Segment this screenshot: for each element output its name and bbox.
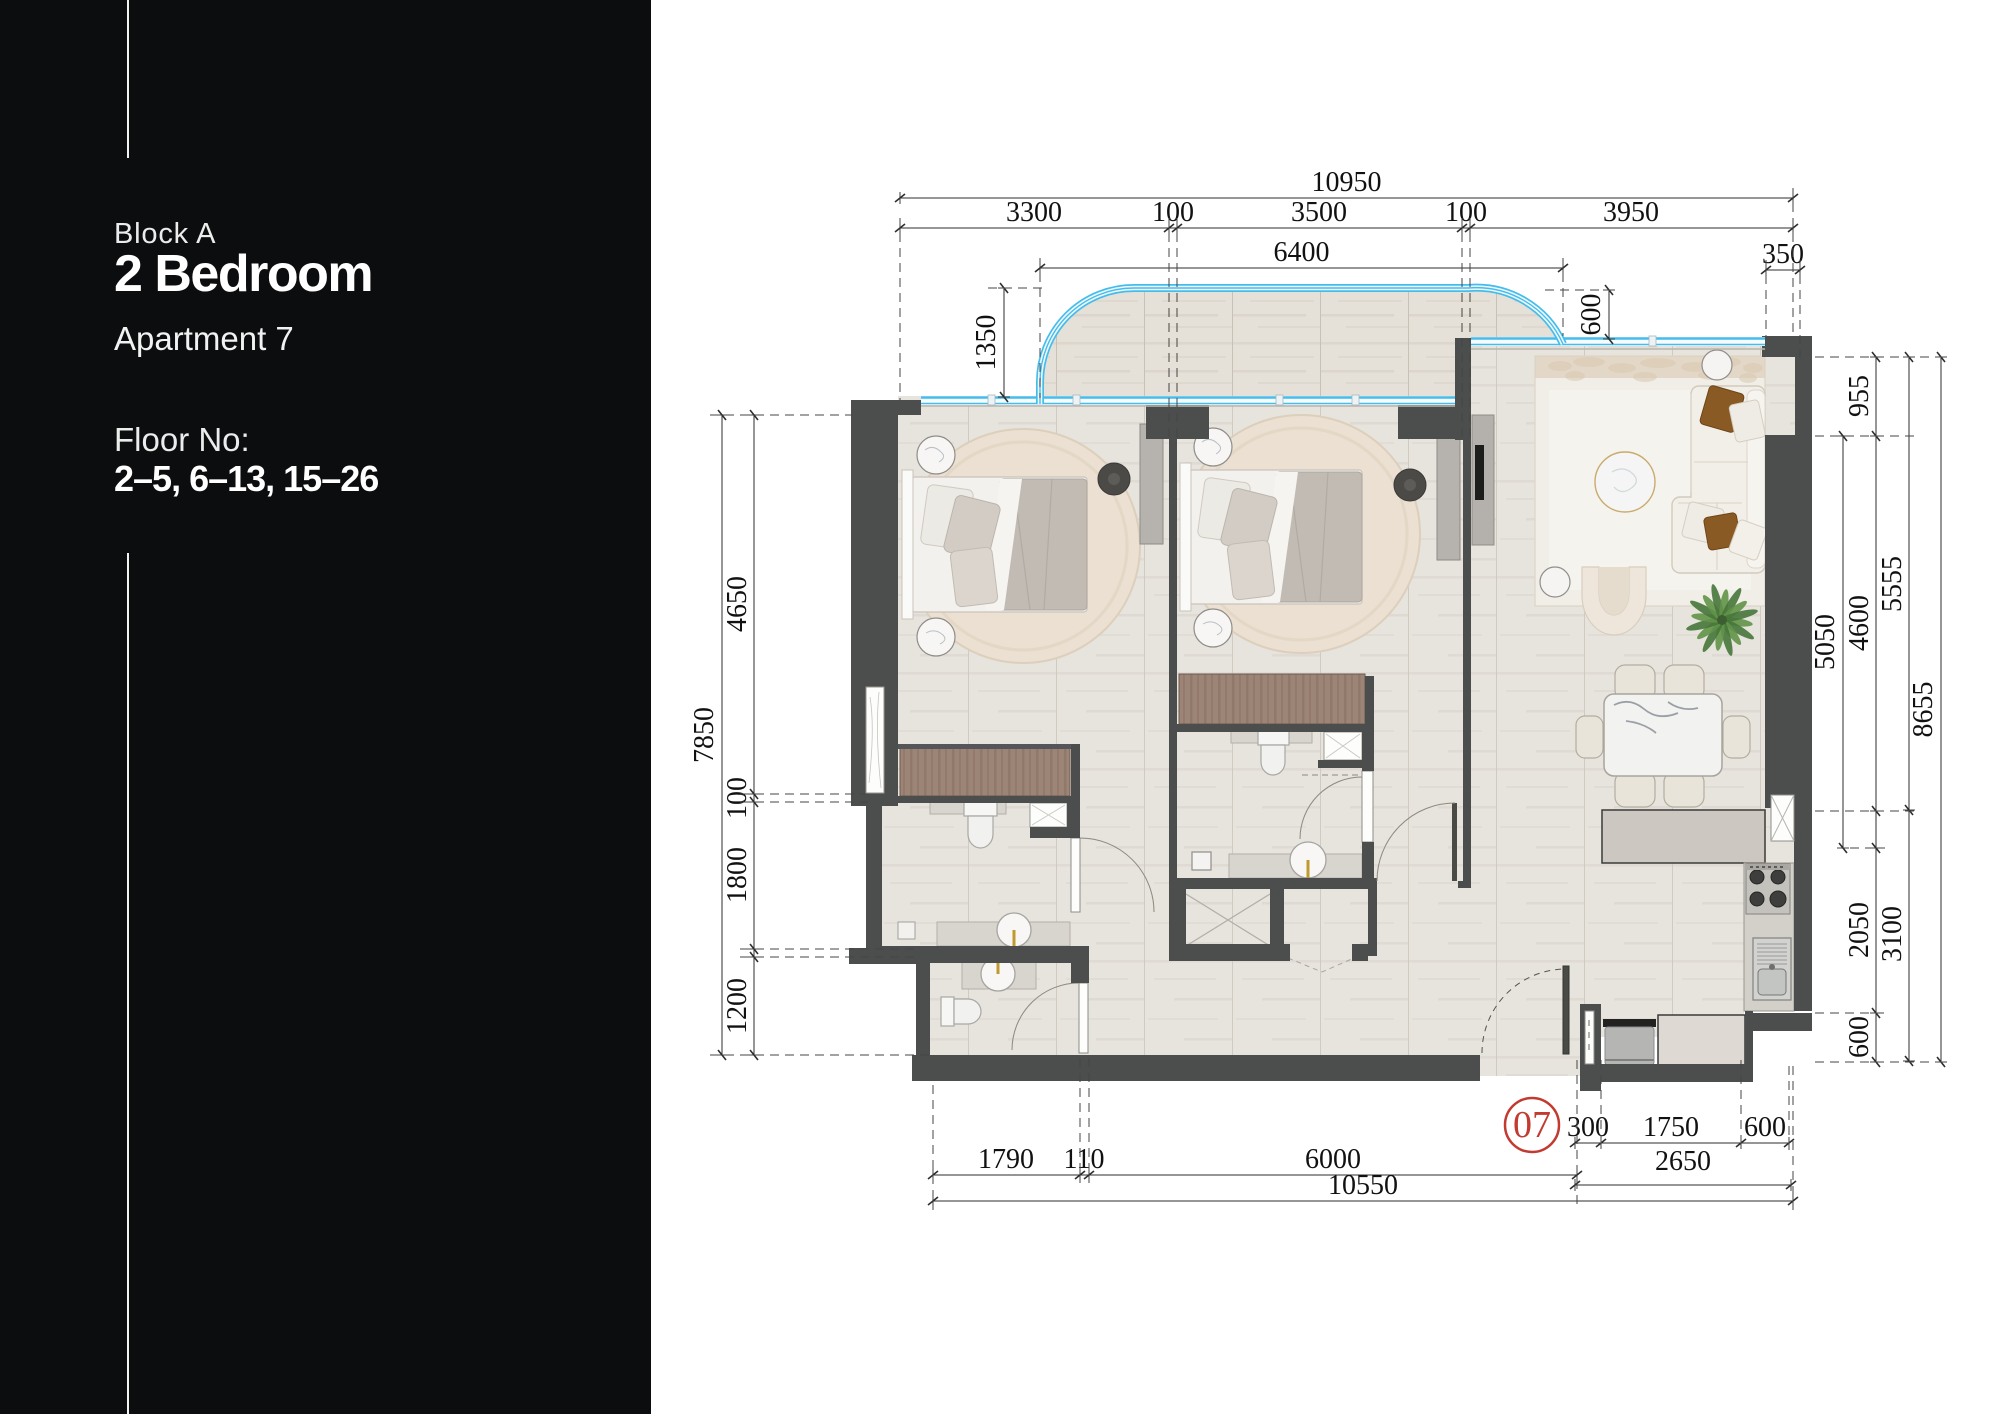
svg-text:100: 100 [1445,197,1487,228]
svg-text:5555: 5555 [1877,556,1908,612]
svg-text:100: 100 [722,777,753,819]
svg-text:1200: 1200 [722,978,753,1034]
svg-text:10950: 10950 [1312,167,1382,198]
svg-text:1750: 1750 [1643,1112,1699,1143]
svg-text:3100: 3100 [1877,906,1908,962]
svg-text:600: 600 [1844,1016,1875,1058]
svg-text:1800: 1800 [722,847,753,903]
svg-text:100: 100 [1152,197,1194,228]
svg-text:5050: 5050 [1810,614,1841,670]
svg-text:4600: 4600 [1844,595,1875,651]
svg-text:600: 600 [1744,1112,1786,1143]
svg-text:600: 600 [1576,294,1607,336]
svg-text:3950: 3950 [1603,197,1659,228]
svg-text:2650: 2650 [1655,1146,1711,1177]
svg-text:3300: 3300 [1006,197,1062,228]
svg-text:110: 110 [1064,1144,1105,1175]
svg-text:955: 955 [1844,375,1875,417]
svg-text:7850: 7850 [689,707,720,763]
svg-text:07: 07 [1513,1104,1551,1146]
svg-text:1350: 1350 [971,315,1002,371]
svg-text:10550: 10550 [1328,1170,1398,1201]
svg-text:6400: 6400 [1274,237,1330,268]
svg-text:8655: 8655 [1908,682,1939,738]
svg-text:1790: 1790 [978,1144,1034,1175]
svg-text:3500: 3500 [1291,197,1347,228]
svg-text:350: 350 [1762,239,1804,270]
svg-text:2050: 2050 [1844,902,1875,958]
svg-text:4650: 4650 [722,576,753,632]
svg-text:300: 300 [1567,1112,1609,1143]
